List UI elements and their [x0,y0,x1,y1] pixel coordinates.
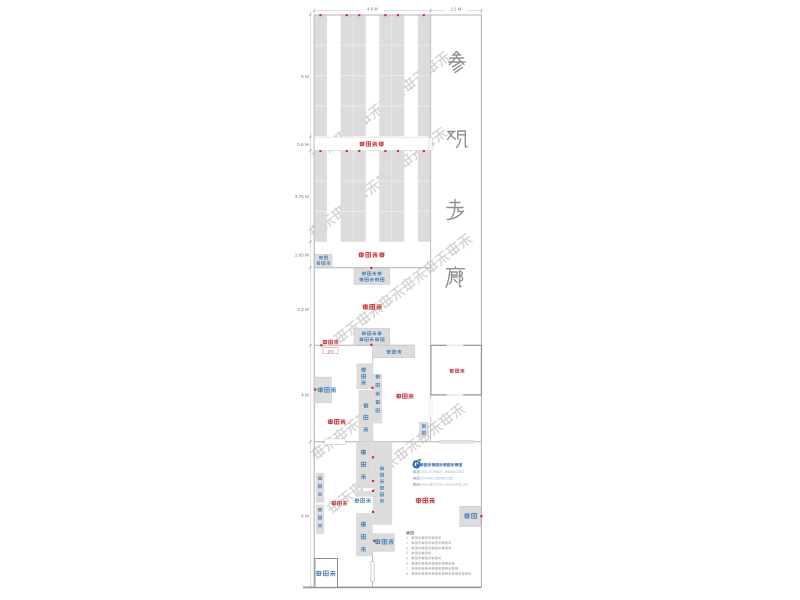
svg-text:6 M: 6 M [301,514,309,519]
svg-text:6.: 6. [406,562,409,566]
svg-text:4.8 M: 4.8 M [367,6,378,11]
svg-text:2.1 M: 2.1 M [451,6,462,11]
svg-text:1.05 M: 1.05 M [295,253,309,258]
svg-text:3.75 M: 3.75 M [295,194,309,199]
svg-text:3.2 M: 3.2 M [297,307,309,312]
svg-text:www.sdjnth.com, www.cnthkj.com: www.sdjnth.com, www.cnthkj.com [421,483,469,487]
svg-text:5 M: 5 M [301,74,309,79]
svg-text:0.6 M: 0.6 M [297,142,309,147]
svg-text:4.: 4. [406,551,409,555]
svg-text:3.: 3. [406,546,409,550]
svg-text:5.: 5. [406,556,409,560]
svg-text:7.: 7. [406,567,409,571]
svg-text:8.: 8. [406,572,409,576]
svg-text:4 M: 4 M [301,393,309,398]
svg-text:(0.6: (0.6 [328,350,334,354]
svg-text:1.: 1. [406,536,409,540]
svg-text:2.: 2. [406,541,409,545]
svg-text:0531-87796627, 15866612352: 0531-87796627, 15866612352 [421,470,465,474]
svg-text:5743748 15866612352: 5743748 15866612352 [421,477,454,481]
